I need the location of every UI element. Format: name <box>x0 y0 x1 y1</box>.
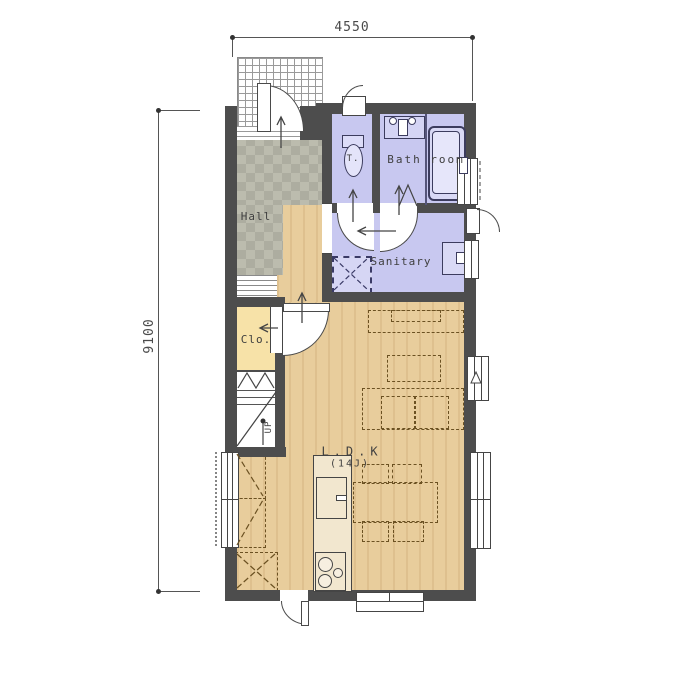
stairs-up-label: UP <box>265 421 275 434</box>
dim-top-dot-right <box>470 35 475 40</box>
ldk-label: L.D.K <box>321 445 382 458</box>
dim-left-label: 9100 <box>143 318 157 353</box>
bathroom-label: Bath room <box>387 154 465 166</box>
cabinet-diagonals <box>237 454 275 588</box>
closet-label: Clo. <box>241 334 272 346</box>
dim-top-ext-right <box>472 38 473 101</box>
sanitary-label: Sanitary <box>371 256 432 268</box>
stairs-break-zigzag <box>238 373 274 388</box>
hall-label: Hall <box>241 211 272 223</box>
toilet-arrow <box>349 190 357 222</box>
dim-left-line <box>158 110 159 592</box>
washing-pan-x <box>334 258 368 290</box>
dim-left-dot-top <box>156 108 161 113</box>
floor-plan: 4550 9100 Hall T. Bath room Sanitary Clo… <box>0 0 680 680</box>
entry-arrow <box>277 117 285 148</box>
closet-arrow <box>260 324 278 332</box>
dim-top-dot-left <box>230 35 235 40</box>
window-casement-triangle <box>471 372 481 383</box>
stairs-direction-line <box>237 392 276 446</box>
dim-top-ext-left <box>232 38 233 57</box>
sanitary-arrow <box>358 227 396 235</box>
dim-left-ext-bottom <box>158 591 200 592</box>
toilet-label: T. <box>347 155 360 165</box>
dim-left-ext-top <box>158 110 200 111</box>
plan-linework <box>0 0 680 680</box>
ldk-door-arrow <box>298 293 306 323</box>
dim-top-label: 4550 <box>334 21 369 35</box>
bath-folding-door <box>399 185 417 206</box>
dim-top-line <box>232 37 472 38</box>
ldk-size-label: (14J) <box>330 459 370 470</box>
dim-left-dot-bottom <box>156 589 161 594</box>
